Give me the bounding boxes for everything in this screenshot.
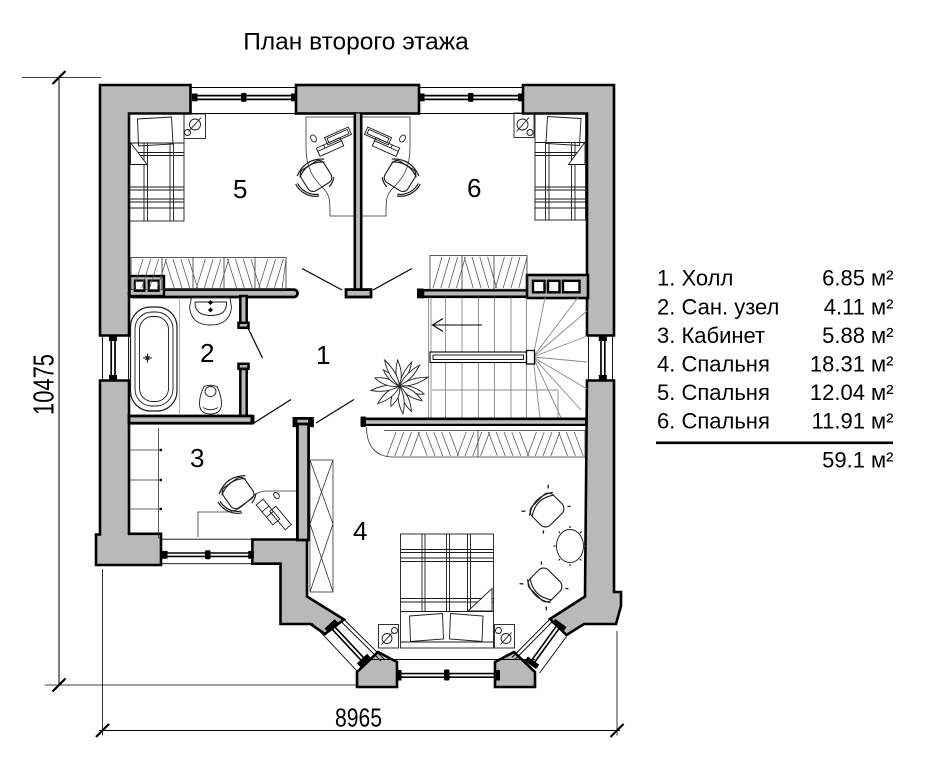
svg-text:4. Спальня: 4. Спальня [657,352,770,377]
svg-text:11.91 м²: 11.91 м² [812,409,894,434]
svg-text:18.31 м²: 18.31 м² [810,352,894,377]
svg-text:3: 3 [190,443,204,473]
svg-text:5.88 м²: 5.88 м² [822,323,893,348]
svg-text:1: 1 [316,340,330,370]
svg-text:8965: 8965 [335,703,382,733]
svg-text:10475: 10475 [29,354,61,415]
svg-text:6.85 м²: 6.85 м² [822,266,893,291]
svg-text:6. Спальня: 6. Спальня [657,409,770,434]
svg-text:5: 5 [233,174,247,204]
svg-text:2: 2 [200,338,214,368]
svg-text:1. Холл: 1. Холл [657,266,733,291]
svg-text:План второго этажа: План второго этажа [243,29,469,56]
svg-text:6: 6 [467,173,481,203]
svg-text:59.1 м²: 59.1 м² [822,448,893,473]
svg-text:3. Кабинет: 3. Кабинет [657,323,765,348]
svg-text:4.11 м²: 4.11 м² [824,295,894,320]
svg-text:12.04 м²: 12.04 м² [810,380,894,405]
svg-text:4: 4 [353,516,367,546]
svg-text:2. Сан. узел: 2. Сан. узел [657,295,779,320]
svg-text:5. Спальня: 5. Спальня [657,380,770,405]
